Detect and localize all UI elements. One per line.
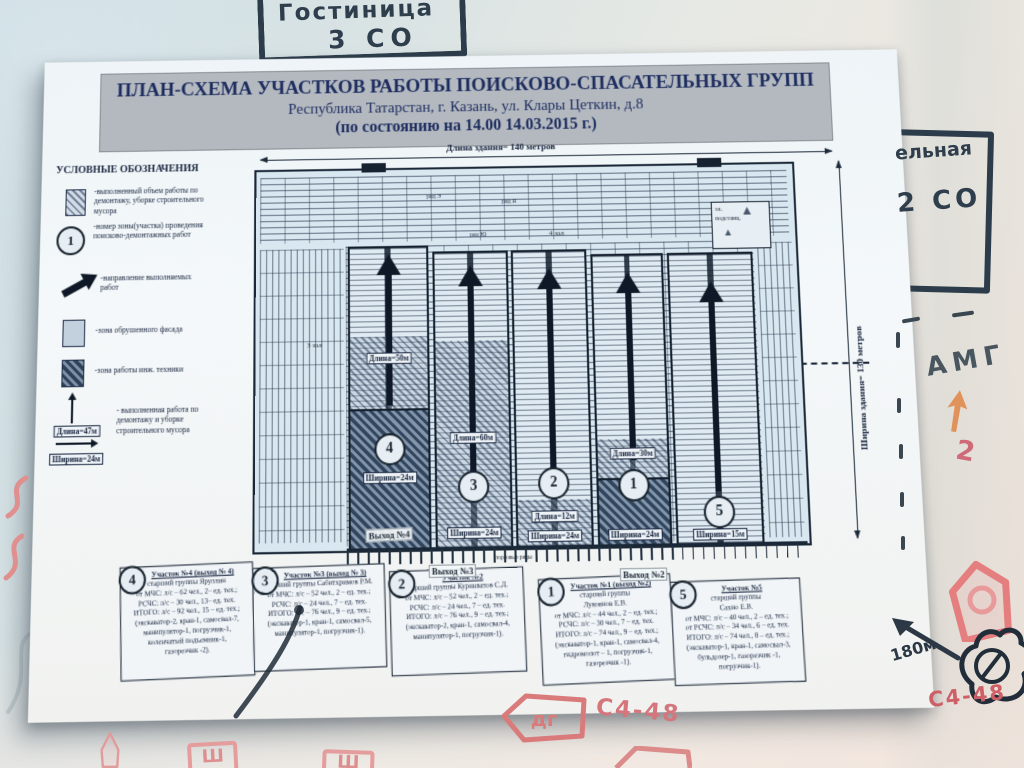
zone-2-length-label: Длина=12м: [531, 510, 578, 523]
black-scribble-line: [222, 602, 312, 722]
zone-1-number-badge: 1: [617, 469, 649, 502]
legend-item1-text: -выполненный объем работы по демонтажу, …: [94, 185, 208, 216]
red-pentagon-partial: [612, 746, 692, 768]
sh-label-2: Ш: [337, 752, 360, 768]
zone-1-length-label: Длина=30м: [609, 447, 656, 460]
zone-4-number-badge: 4: [374, 433, 405, 466]
legend-item5-text: -зона работы инж. техники: [94, 364, 208, 376]
row-label-yu: ряд Ю: [470, 232, 487, 238]
red-sh-box-2: Ш: [321, 749, 374, 768]
dash-mark: [900, 492, 904, 507]
zone-2-strip: Длина=12м 2 Ширина=24м: [511, 249, 594, 548]
dash-mark: [901, 536, 905, 550]
substation-box: эл. подстанц. ▲ ▲: [711, 201, 772, 249]
handwritten-right-note-line2: 2 СО: [896, 183, 982, 219]
exit-2-label: Выход №2: [620, 567, 668, 581]
building-plan: ряд Э ряд Ю ряд Я 4 зал 3 зал 1 зал эл. …: [252, 162, 812, 555]
trade-rows-label: торговые ряды: [496, 554, 532, 561]
zone-3-number-badge: 3: [458, 470, 490, 503]
stall-rows-left-block: [259, 249, 345, 544]
zone-4-strip: Длина=50м 4 Ширина=24м: [348, 245, 432, 550]
zone-4-length-label: Длина=50м: [366, 352, 412, 364]
handwritten-amg-label: АМГ: [924, 339, 1009, 383]
legend-length-label: Длина=47м: [53, 425, 100, 438]
dash-mark: [952, 310, 974, 317]
exit-3-label: Выход №3: [429, 564, 477, 578]
warning-triangle-icon: ▲: [740, 202, 754, 219]
legend-hatched-swatch-icon: [65, 189, 86, 216]
group-box-5: 5 Участок №5 старший группы Сахно Е.В. о…: [670, 577, 807, 686]
substation-label-line2: подстанц.: [715, 216, 741, 223]
zone-3-strip: Длина=60м 3 Ширина=24м: [432, 250, 513, 549]
dg-label: дг: [531, 707, 558, 731]
zone-3-width-label: Ширина=24м: [447, 526, 502, 539]
row-label-e: ряд Э: [427, 194, 442, 200]
legend-right-arrow-icon: [56, 442, 91, 445]
red-pentagon-dg-sign: дг: [500, 692, 590, 744]
red-squiggle-marks: [0, 474, 34, 590]
whiteboard-photo: Гостиница 3 СО ельная 2 СО ПЛАН-СХЕМА УЧ…: [0, 0, 1024, 768]
exit-4-label: Выход №4: [365, 527, 413, 543]
zone-3-length-label: Длина=60м: [450, 432, 496, 445]
legend-direction-arrow-icon: [61, 278, 88, 297]
zone-1-direction-arrow-icon: [625, 291, 636, 461]
poster-title-bar: ПЛАН-СХЕМА УЧАСТКОВ РАБОТЫ ПОИСКОВО-СПАС…: [99, 62, 833, 152]
zone-5-direction-arrow-icon: [708, 300, 722, 491]
legend-item4-text: -зона обрушенного фасада: [95, 324, 208, 336]
dash-mark: [896, 332, 900, 348]
row-label-ya: ряд Я: [502, 199, 517, 205]
stall-rows-right-strip: [757, 242, 805, 538]
legend-width-label: Ширина=24м: [49, 453, 103, 466]
zone-2-number-badge: 2: [538, 467, 570, 500]
sh-label-1: Ш: [201, 745, 224, 767]
legend-up-arrow-icon: [71, 400, 74, 423]
zone-2-width-label: Ширина=24м: [528, 529, 583, 542]
legend-heading: УСЛОВНЫЕ ОБОЗНАЧЕНИЯ: [56, 163, 198, 176]
legend-collapsed-facade-swatch-icon: [62, 320, 85, 348]
dim-tick-box: [697, 158, 722, 168]
legend-item3-text: -направление выполняемых работ: [100, 272, 203, 293]
group-box-1: 1 Участок №1 (выход №2) старший группы Л…: [538, 573, 677, 686]
zone-5-width-label: Ширина=15м: [693, 528, 748, 541]
zone-4-direction-arrow-icon: [385, 273, 392, 406]
legend-item6-text: - выполненная работа по демонтажу и убор…: [116, 404, 212, 436]
zone-3-direction-arrow-icon: [467, 284, 476, 481]
handwritten-red-two: 2: [953, 435, 977, 469]
legend-zone-number-icon: 1: [56, 226, 85, 255]
group-box-2: 2 Участок №2 старший группы Куринватов С…: [389, 566, 527, 676]
hall3-label: 3 зал: [307, 341, 322, 350]
dash-mark: [897, 398, 901, 413]
zone-2-direction-arrow-icon: [546, 287, 557, 495]
dash-mark: [899, 444, 903, 459]
zone-1-width-label: Ширина=24м: [608, 528, 663, 541]
zone-5-strip: 5 Ширина=15м: [667, 252, 765, 546]
dim-tick-box: [362, 163, 386, 173]
zone-1-strip: Длина=30м 1 Ширина=24м: [590, 253, 672, 547]
building-width-label: Ширина здания= 130 метров: [853, 326, 870, 450]
building-length-dimension-line: [260, 151, 831, 161]
red-obelisk-outline: [92, 732, 128, 768]
handwritten-top-note-line2: 3 СО: [328, 22, 419, 54]
red-sh-box-1: Ш: [187, 741, 239, 768]
substation-label-line1: эл.: [715, 207, 722, 213]
hall4-label: 4 зал: [549, 229, 564, 237]
legend-item2-text: -номер зоны(участка) проведения поисково…: [93, 220, 207, 241]
warning-triangle-icon: ▲: [723, 227, 734, 238]
zone-5-number-badge: 5: [703, 495, 736, 528]
orange-arrow-mark-icon: [944, 388, 970, 434]
legend-eng-vehicles-swatch-icon: [61, 360, 84, 388]
zone-4-width-label: Ширина=24м: [363, 471, 417, 484]
poster-paper: ПЛАН-СХЕМА УЧАСТКОВ РАБОТЫ ПОИСКОВО-СПАС…: [28, 49, 934, 722]
building-length-label: Длина здания= 140 метров: [446, 141, 555, 153]
